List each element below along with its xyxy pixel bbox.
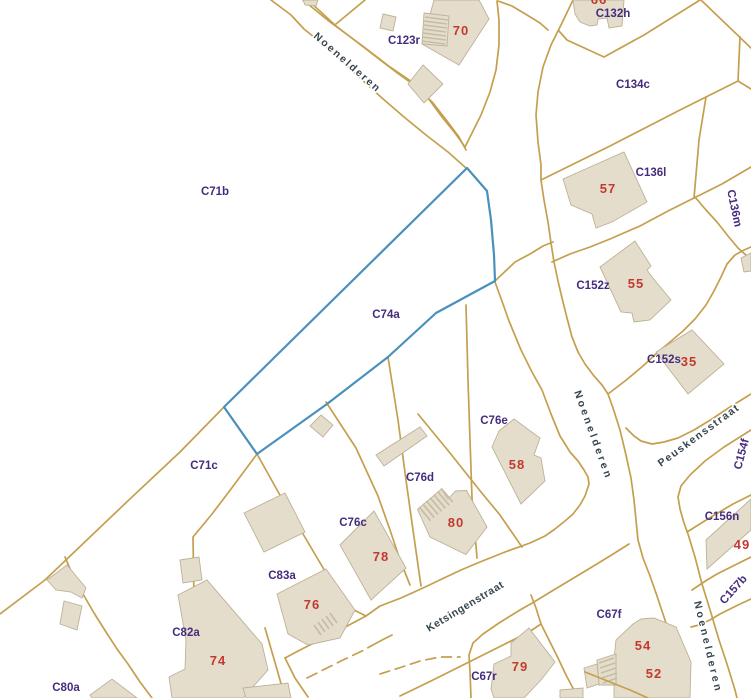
svg-text:C152s: C152s: [647, 354, 681, 366]
svg-text:66: 66: [591, 0, 607, 7]
svg-text:C67f: C67f: [597, 609, 622, 621]
svg-text:C152z: C152z: [576, 280, 609, 292]
svg-text:C82a: C82a: [172, 627, 200, 639]
svg-text:35: 35: [681, 354, 697, 369]
svg-text:52: 52: [646, 666, 662, 681]
svg-text:C74a: C74a: [372, 309, 400, 321]
svg-text:C76e: C76e: [480, 415, 508, 427]
svg-text:C123r: C123r: [388, 35, 420, 47]
svg-text:74: 74: [210, 653, 226, 668]
svg-text:C134c: C134c: [616, 79, 650, 91]
svg-text:C76c: C76c: [339, 517, 367, 529]
svg-text:70: 70: [453, 23, 469, 38]
svg-text:C71b: C71b: [201, 186, 229, 198]
svg-text:58: 58: [509, 457, 525, 472]
svg-text:C136l: C136l: [636, 167, 667, 179]
svg-text:79: 79: [512, 659, 528, 674]
svg-text:76: 76: [304, 597, 320, 612]
svg-text:C71c: C71c: [190, 460, 218, 472]
svg-text:C80a: C80a: [52, 682, 80, 694]
svg-text:C67r: C67r: [471, 671, 497, 683]
svg-text:C156n: C156n: [705, 511, 740, 523]
svg-text:C76d: C76d: [406, 472, 434, 484]
svg-text:C132h: C132h: [596, 8, 631, 20]
svg-text:57: 57: [600, 181, 616, 196]
svg-text:55: 55: [628, 276, 644, 291]
svg-text:C83a: C83a: [268, 570, 296, 582]
svg-text:80: 80: [448, 515, 464, 530]
svg-text:54: 54: [635, 638, 651, 653]
svg-text:49: 49: [734, 537, 750, 552]
svg-text:78: 78: [373, 549, 389, 564]
